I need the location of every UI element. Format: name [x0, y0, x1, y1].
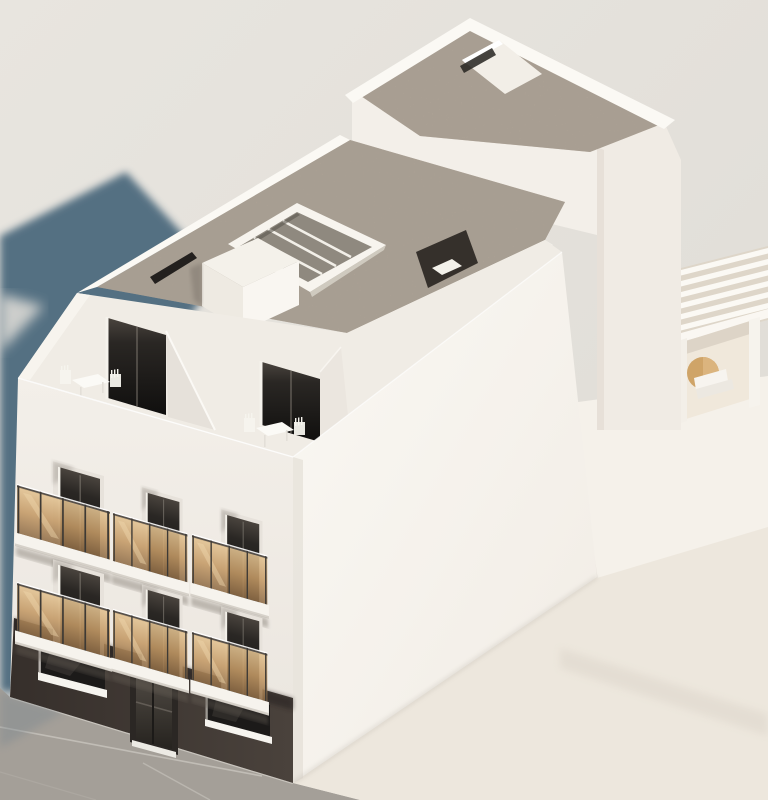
- pergola-frame-left: [681, 338, 687, 423]
- rear-block-right-wall: [597, 122, 681, 430]
- pergola-terrace: [681, 246, 768, 423]
- render-canvas: [0, 0, 768, 800]
- corner-ao: [293, 457, 303, 783]
- architectural-render: [0, 0, 768, 800]
- pergola-post: [749, 317, 760, 408]
